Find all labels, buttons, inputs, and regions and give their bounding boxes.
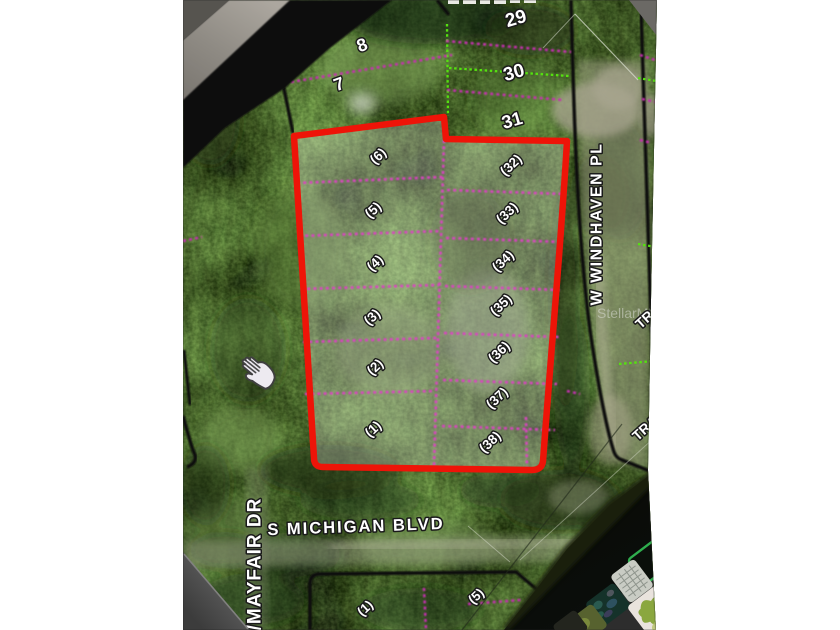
svg-text:/MAYFAIR DR: /MAYFAIR DR [245, 498, 266, 630]
svg-text:W WINDHAVEN PL: W WINDHAVEN PL [589, 143, 606, 306]
